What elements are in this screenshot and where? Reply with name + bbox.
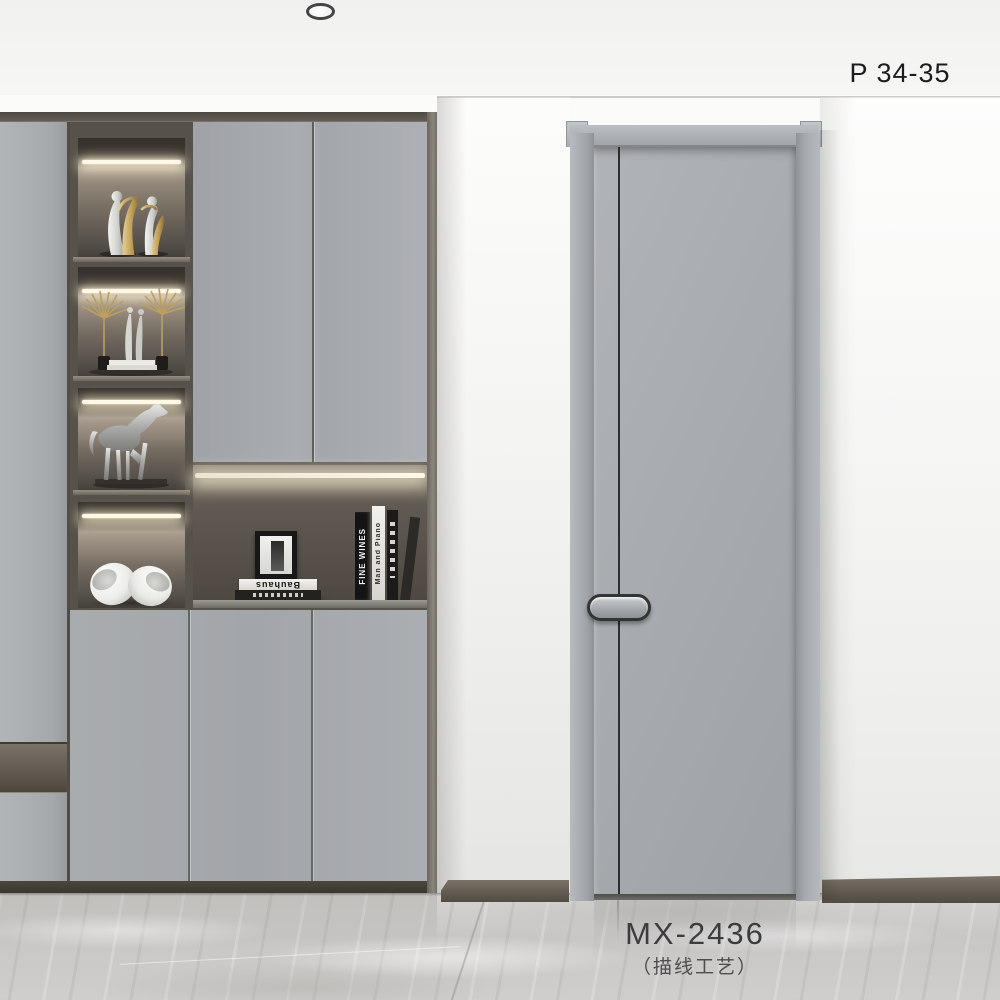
cabinet-upper-doors bbox=[193, 122, 427, 465]
led-strip-light bbox=[82, 514, 181, 518]
door-frame-shadow bbox=[820, 130, 840, 900]
door-seam bbox=[311, 610, 313, 881]
led-strip-light bbox=[82, 160, 181, 164]
gold-fan-and-figurines-decor bbox=[78, 274, 185, 376]
silver-horse-sculpture bbox=[81, 401, 181, 489]
wall-shadow-left-of-door bbox=[437, 97, 570, 903]
recessed-ceiling-light bbox=[306, 3, 335, 20]
door-handle bbox=[587, 594, 651, 621]
door-frame-header bbox=[570, 125, 818, 147]
book-spine: Man and Piano bbox=[372, 506, 385, 600]
shelf-board bbox=[73, 376, 190, 381]
wall-shadow-right-of-door bbox=[820, 97, 1000, 903]
book-spine-title: Man and Piano bbox=[375, 522, 382, 584]
standing-books: FINE WINES Man and Piano bbox=[355, 504, 417, 600]
door-frame-jamb-right bbox=[796, 133, 820, 901]
shelf-niche-horse bbox=[78, 388, 185, 490]
floor-tile-seam bbox=[120, 946, 460, 965]
book-bauhaus: Bauhaus bbox=[239, 579, 317, 590]
book-spine bbox=[387, 510, 398, 600]
baseboard-right-of-door bbox=[822, 876, 1000, 903]
stacked-books: Bauhaus bbox=[235, 579, 321, 600]
book-title: Bauhaus bbox=[255, 580, 300, 590]
entry-cabinet: Bauhaus FINE WINES Man and Piano bbox=[0, 112, 437, 893]
floor-tile-seam bbox=[450, 890, 489, 1000]
cabinet-toe-kick bbox=[0, 881, 437, 893]
door-seam bbox=[188, 610, 190, 881]
door-technique-note: （描线工艺） bbox=[565, 952, 825, 979]
book-spine bbox=[400, 517, 420, 602]
shelf-niche-bowls bbox=[78, 502, 185, 608]
photo-frame bbox=[255, 531, 297, 579]
book-spine: FINE WINES bbox=[355, 512, 370, 600]
door-leaf-mx2436 bbox=[594, 147, 796, 897]
cabinet-top-frame bbox=[0, 112, 437, 122]
shelf-niche-fans bbox=[78, 267, 185, 376]
display-shelf-column bbox=[70, 122, 193, 618]
open-display-niche: Bauhaus FINE WINES Man and Piano bbox=[193, 465, 427, 608]
cabinet-floor-reflection bbox=[0, 893, 437, 948]
led-strip-light bbox=[195, 473, 425, 478]
photo-artwork bbox=[260, 536, 292, 574]
door-bottom-gap bbox=[594, 894, 796, 900]
book-spine-title: FINE WINES bbox=[358, 528, 367, 585]
interior-door-catalog-photo: Bauhaus FINE WINES Man and Piano bbox=[0, 0, 1000, 1000]
baseboard-left-of-door bbox=[441, 880, 569, 902]
shelf-board bbox=[73, 490, 190, 495]
door-inlay-line bbox=[618, 147, 620, 897]
door-model-code: MX-2436 bbox=[565, 916, 825, 952]
door-frame-jamb-left bbox=[570, 133, 594, 901]
catalog-page-reference: P 34-35 bbox=[800, 58, 1000, 89]
shelf-niche-figurines bbox=[78, 138, 185, 257]
cabinet-left-panel bbox=[0, 122, 70, 893]
cabinet-lower-doors bbox=[70, 608, 437, 881]
cabinet-drawer-recess bbox=[0, 742, 67, 793]
cabinet-side-panel bbox=[427, 112, 437, 893]
shelf-board bbox=[73, 257, 190, 262]
couple-figurines-sculpture bbox=[86, 181, 178, 257]
door-seam bbox=[312, 122, 314, 462]
book-dark bbox=[235, 590, 321, 600]
niche-shelf-floor bbox=[193, 600, 427, 608]
marble-floor bbox=[0, 893, 1000, 1000]
